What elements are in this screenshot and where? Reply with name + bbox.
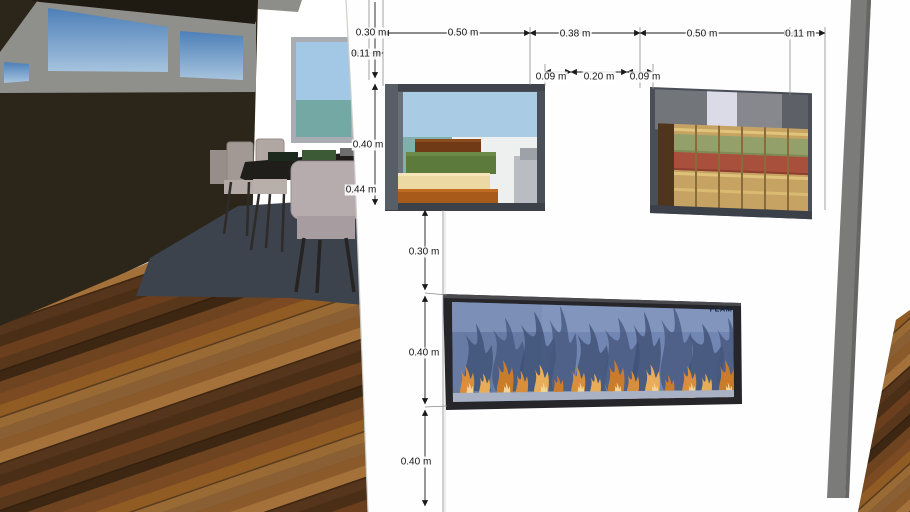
dim-gap-009a: 0.09 m (535, 72, 568, 83)
back-window (291, 37, 355, 143)
chair-far-left (210, 150, 228, 184)
niche-shelf (385, 203, 545, 211)
fireplace-brand-label: FLAM (710, 305, 733, 314)
dim-col-040b: 0.40 m (400, 457, 433, 468)
table-item-green (302, 150, 336, 160)
dim-niche-044: 0.44 m (345, 185, 378, 196)
dim-top-030: 0.30 m (355, 28, 388, 39)
fireplace (443, 294, 745, 410)
left-niche (385, 84, 545, 211)
clerestory-windows (0, 0, 258, 93)
dim-col-040a: 0.40 m (408, 348, 441, 359)
dim-top-038: 0.38 m (559, 29, 592, 40)
dim-top-050b: 0.50 m (686, 29, 719, 40)
dim-col-030: 0.30 m (408, 247, 441, 258)
dim-top-050a: 0.50 m (447, 28, 480, 39)
niche-back-light (707, 91, 737, 130)
dim-gap-009b: 0.09 m (629, 72, 662, 83)
dim-top-011: 0.11 m (784, 29, 816, 40)
table-item-dark (268, 152, 298, 161)
scene-render (0, 0, 910, 512)
chair-seat-large (297, 216, 355, 239)
dim-gap-020: 0.20 m (583, 72, 616, 83)
chair-seat-2 (253, 179, 287, 194)
sky-through-niche (402, 92, 537, 137)
dim-niche-040: 0.40 m (352, 140, 385, 151)
right-niche (650, 87, 812, 219)
niche-step (514, 156, 537, 203)
sketchup-3d-viewport[interactable]: 0.30 m 0.50 m 0.38 m 0.50 m 0.11 m 0.11 … (0, 0, 910, 512)
dim-return-011: 0.11 m (350, 49, 382, 60)
encyclopedia-row (658, 123, 808, 213)
